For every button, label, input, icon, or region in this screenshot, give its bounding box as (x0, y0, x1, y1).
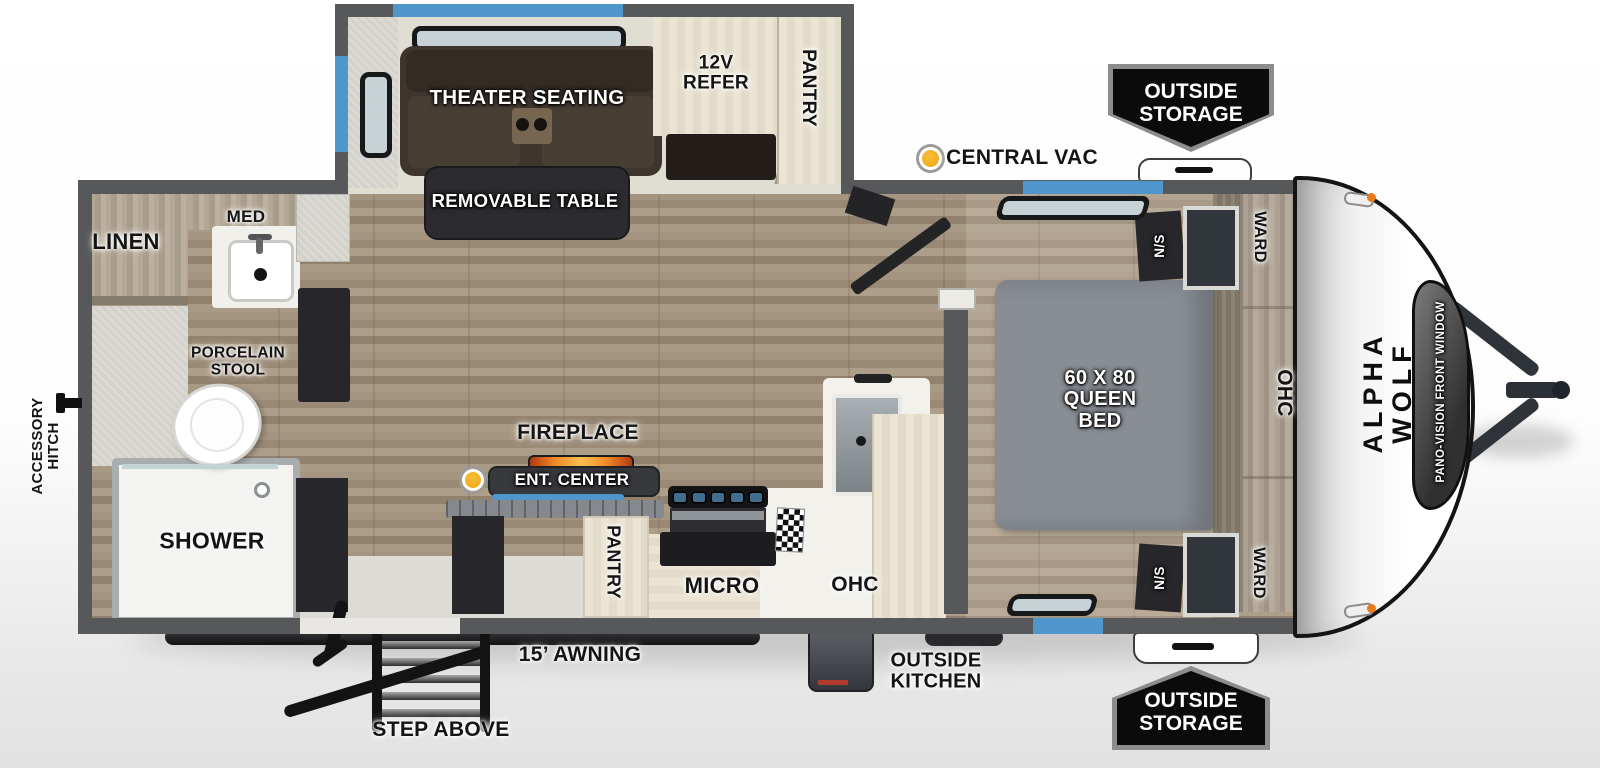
pano-vision-label: PANO-VISION FRONT WINDOW (1435, 272, 1447, 512)
fireplace-label: FIREPLACE (517, 422, 639, 444)
bedroom-skylight-top (995, 196, 1152, 220)
refer-label: 12V REFER (683, 54, 749, 95)
entertainment-led-strip (492, 494, 624, 500)
bedroom-skylight-bottom (1005, 594, 1099, 616)
storage-door-handle (1172, 643, 1214, 650)
storage-door-handle (1175, 167, 1213, 173)
range-burner-bar (668, 486, 768, 508)
cupholder-icon (516, 118, 529, 131)
hitch-coupler (1552, 381, 1570, 399)
cupholder-icon (534, 118, 547, 131)
marker-light-icon (1367, 193, 1376, 202)
burner-icons (668, 486, 768, 508)
refrigerator-front (666, 134, 776, 180)
outside-kitchen-label: OUTSIDE KITCHEN (891, 651, 982, 694)
accessory-hitch-label: ACCESSORY HITCH (30, 397, 62, 494)
hitch-tongue (1506, 382, 1558, 398)
slide-window-left-strip (335, 56, 348, 152)
queen-bed-label: 60 X 80 QUEEN BED (1064, 368, 1137, 432)
wall-top-rear (78, 180, 340, 194)
slide-window-top-strip (393, 4, 623, 17)
ent-counter-base (452, 516, 504, 614)
dresser-bottom (1183, 533, 1239, 617)
micro-label: MICRO (685, 574, 760, 598)
bedroom-wall-cap (938, 288, 976, 310)
theater-seating-label: THEATER SEATING (429, 87, 624, 109)
entry-door-opening (300, 618, 460, 634)
outside-storage-badge-top: OUTSIDE STORAGE (1108, 64, 1274, 152)
range-handle (672, 511, 764, 520)
linen-label: LINEN (92, 230, 160, 254)
nightstand-bottom-label: N/S (1153, 566, 1167, 589)
outside-storage-badge-bottom-label: OUTSIDE STORAGE (1117, 671, 1265, 745)
bath-faucet-icon (256, 238, 263, 254)
bedroom-partition-wall (944, 296, 968, 614)
kitchen-faucet-icon (854, 374, 892, 383)
kitchen-drain-icon (856, 436, 866, 446)
linen-cabinet-edge (92, 296, 188, 305)
bedroom-window-top-strip (1023, 181, 1163, 194)
wardrobe-top-label: WARD (1250, 211, 1268, 263)
central-vac-marker-dot (919, 147, 942, 170)
removable-table-label: REMOVABLE TABLE (432, 191, 619, 211)
shower-glass (122, 464, 278, 469)
kitchen-pantry-label: PANTRY (603, 525, 622, 599)
marker-light-icon (1367, 604, 1376, 613)
brand-label: ALPHA WOLF (1359, 286, 1417, 498)
bath-door (298, 288, 350, 402)
bath-wall-stub (296, 194, 350, 262)
shower-label: SHOWER (159, 529, 264, 554)
entry-step-rung (382, 692, 480, 700)
bath-partition-wall (90, 306, 188, 466)
accessory-hitch-knob (62, 398, 82, 408)
bath-drain-icon (254, 268, 267, 281)
outside-storage-badge-top-label: OUTSIDE STORAGE (1113, 69, 1269, 147)
shower-drain-icon (254, 482, 270, 498)
nightstand-top-label: N/S (1153, 234, 1167, 257)
bedroom-ohc-label: OHC (1273, 369, 1295, 417)
ent-center-label: ENT. CENTER (515, 471, 630, 489)
wall-bottom (78, 618, 1312, 634)
entry-step-rung (382, 641, 480, 649)
wardrobe-bottom-label: WARD (1249, 547, 1267, 599)
dresser-top (1183, 206, 1239, 290)
ent-center-marker-dot (462, 469, 484, 491)
dish-mat (775, 507, 805, 552)
kitchen-tall-cabinet (872, 414, 946, 618)
griddle-accent (818, 680, 848, 685)
entry-step-rail (480, 630, 490, 732)
entry-step-rung (382, 709, 480, 717)
slide-side-window (360, 72, 392, 158)
microwave (660, 532, 776, 566)
entry-wardrobe (296, 478, 348, 612)
theater-sofa (400, 46, 662, 176)
bedroom-window-bottom-strip (1033, 618, 1103, 634)
kitchen-ohc-label: OHC (831, 574, 879, 596)
slide-pantry-label: PANTRY (798, 49, 818, 127)
range-body (670, 508, 766, 532)
awning-label: 15’ AWNING (519, 644, 641, 666)
outside-storage-badge-bottom: OUTSIDE STORAGE (1112, 666, 1270, 750)
porcelain-stool-label: PORCELAIN STOOL (191, 345, 285, 378)
central-vac-label: CENTRAL VAC (946, 147, 1098, 169)
med-label: MED (227, 208, 266, 226)
floorplan-canvas: OUTSIDE STORAGE OUTSIDE STORAGE LINEN ME… (0, 0, 1600, 768)
step-above-label: STEP ABOVE (372, 719, 509, 741)
slide-wall-right (841, 4, 854, 194)
